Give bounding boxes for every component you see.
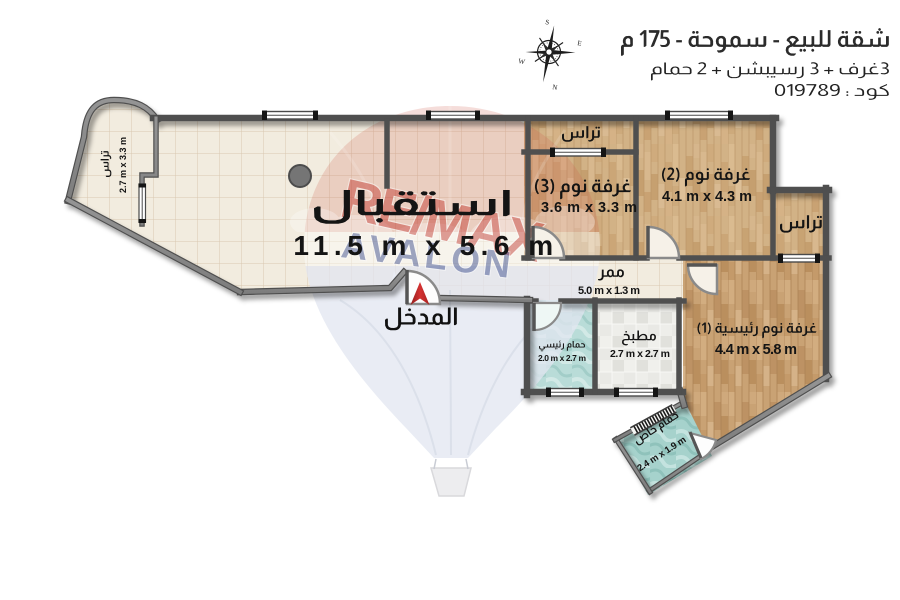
svg-text:2.7 m x 2.7 m: 2.7 m x 2.7 m bbox=[610, 348, 670, 360]
svg-text:4.4 m x 5.8 m: 4.4 m x 5.8 m bbox=[715, 342, 797, 358]
svg-text:2.0 m x 2.7 m: 2.0 m x 2.7 m bbox=[538, 353, 586, 363]
svg-text:11.5 m x 5.6 m: 11.5 m x 5.6 m bbox=[293, 230, 558, 261]
svg-text:5.0 m x 1.3 m: 5.0 m x 1.3 m bbox=[578, 285, 640, 297]
svg-text:3.6 m x 3.3 m: 3.6 m x 3.3 m bbox=[541, 200, 637, 216]
svg-text:2.7 m x 3.3 m: 2.7 m x 3.3 m bbox=[118, 137, 128, 193]
svg-text:4.1 m x 4.3 m: 4.1 m x 4.3 m bbox=[662, 189, 752, 205]
